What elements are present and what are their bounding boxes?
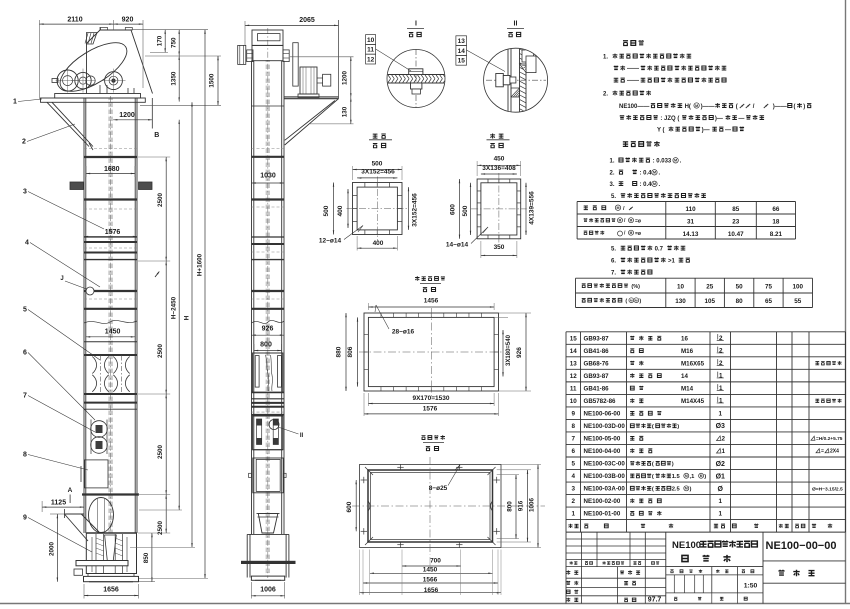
svg-text:M: M bbox=[617, 206, 620, 210]
svg-text:Ø2: Ø2 bbox=[716, 461, 725, 468]
svg-text:NE100: NE100 bbox=[672, 540, 701, 551]
svg-text:1: 1 bbox=[13, 99, 17, 106]
svg-text:H−2450: H−2450 bbox=[171, 296, 178, 319]
svg-text:10: 10 bbox=[677, 283, 685, 290]
svg-text:600: 600 bbox=[450, 204, 457, 215]
svg-text:5.: 5. bbox=[611, 194, 616, 200]
svg-text:1200: 1200 bbox=[119, 112, 135, 119]
svg-text:1: 1 bbox=[719, 385, 723, 392]
svg-text:800: 800 bbox=[507, 501, 514, 512]
svg-text:(: ( bbox=[625, 298, 627, 304]
svg-text:(: ( bbox=[652, 424, 654, 430]
svg-text:130: 130 bbox=[675, 298, 686, 305]
svg-text:)—: )— bbox=[702, 128, 710, 134]
svg-text:18: 18 bbox=[772, 218, 780, 225]
svg-text:2.5: 2.5 bbox=[672, 487, 681, 493]
svg-text:13: 13 bbox=[570, 360, 578, 367]
svg-text:GB68-76: GB68-76 bbox=[584, 360, 610, 367]
svg-text:II: II bbox=[514, 21, 518, 28]
svg-text:13: 13 bbox=[458, 38, 466, 45]
svg-text:1006: 1006 bbox=[529, 498, 536, 513]
svg-text:—: — bbox=[738, 116, 744, 122]
svg-text:,1: ,1 bbox=[690, 474, 696, 480]
svg-text:28−ø16: 28−ø16 bbox=[392, 329, 415, 336]
svg-text:9: 9 bbox=[571, 410, 575, 417]
svg-text:2500: 2500 bbox=[157, 193, 164, 208]
svg-text:11: 11 bbox=[367, 47, 374, 54]
svg-text:25: 25 bbox=[706, 283, 714, 290]
svg-text:H+1600: H+1600 bbox=[196, 253, 203, 276]
svg-text:=ø: =ø bbox=[635, 231, 642, 237]
svg-text:700: 700 bbox=[430, 558, 441, 565]
svg-text:2: 2 bbox=[719, 335, 723, 342]
svg-text:806: 806 bbox=[347, 346, 354, 357]
svg-text:)——: )—— bbox=[773, 104, 787, 110]
svg-text:8: 8 bbox=[23, 452, 27, 459]
svg-text:M16: M16 bbox=[681, 348, 694, 355]
svg-text:NE100——: NE100—— bbox=[619, 104, 649, 110]
svg-text:2: 2 bbox=[719, 360, 723, 367]
svg-text:85: 85 bbox=[732, 206, 740, 213]
svg-text:GB93-87: GB93-87 bbox=[584, 373, 610, 380]
svg-text:II: II bbox=[300, 433, 304, 439]
svg-text:3X180=540: 3X180=540 bbox=[506, 334, 512, 366]
svg-text:500: 500 bbox=[323, 205, 330, 216]
svg-text:Y (: Y ( bbox=[657, 128, 665, 134]
svg-text:1350: 1350 bbox=[170, 71, 177, 86]
svg-text:2500: 2500 bbox=[157, 521, 164, 536]
svg-text:NE100-01-00: NE100-01-00 bbox=[584, 511, 621, 518]
svg-text:2: 2 bbox=[719, 348, 723, 355]
svg-text:50: 50 bbox=[736, 283, 744, 290]
svg-text:6: 6 bbox=[23, 350, 27, 357]
svg-text:: 0.033: : 0.033 bbox=[653, 159, 672, 165]
svg-text:4: 4 bbox=[571, 473, 575, 480]
svg-text:(%): (%) bbox=[631, 284, 640, 290]
svg-text:1576: 1576 bbox=[423, 406, 438, 413]
svg-text:)—: )— bbox=[715, 116, 723, 122]
svg-text:1006: 1006 bbox=[260, 587, 276, 594]
svg-text:800: 800 bbox=[260, 342, 272, 349]
svg-text:14: 14 bbox=[681, 373, 688, 380]
svg-text:M: M bbox=[619, 218, 622, 222]
svg-text:500: 500 bbox=[462, 205, 469, 216]
svg-text:450: 450 bbox=[494, 156, 505, 163]
svg-text:)——: )—— bbox=[701, 104, 715, 110]
svg-text:12−ø14: 12−ø14 bbox=[319, 238, 342, 245]
svg-text:400: 400 bbox=[337, 205, 344, 216]
svg-text:1200: 1200 bbox=[342, 71, 349, 86]
svg-text:M: M bbox=[695, 104, 698, 108]
svg-text:GB41-86: GB41-86 bbox=[584, 348, 610, 355]
svg-text:5: 5 bbox=[571, 461, 575, 468]
svg-text:NE100-04-00: NE100-04-00 bbox=[584, 448, 621, 455]
svg-text:1450: 1450 bbox=[105, 329, 121, 336]
svg-text:/: / bbox=[624, 231, 626, 237]
svg-text:J: J bbox=[60, 276, 63, 282]
svg-text:920: 920 bbox=[122, 17, 134, 24]
svg-text:110: 110 bbox=[685, 206, 696, 213]
svg-text:Ø: Ø bbox=[718, 486, 724, 493]
svg-text:0.7: 0.7 bbox=[655, 247, 664, 253]
svg-text:NE100-03C-00: NE100-03C-00 bbox=[584, 461, 626, 468]
svg-text:=ø: =ø bbox=[635, 218, 642, 224]
svg-text:31: 31 bbox=[687, 218, 695, 225]
svg-text:(: ( bbox=[652, 474, 654, 480]
svg-text:916: 916 bbox=[518, 500, 525, 511]
svg-text:3X152=456: 3X152=456 bbox=[361, 169, 395, 176]
svg-text:170: 170 bbox=[157, 35, 164, 46]
svg-text:1.5: 1.5 bbox=[672, 474, 681, 480]
svg-text:400: 400 bbox=[373, 240, 384, 247]
svg-text:130: 130 bbox=[342, 106, 349, 117]
svg-text:): ) bbox=[639, 298, 641, 304]
svg-text:2.: 2. bbox=[610, 171, 615, 177]
svg-text:=: = bbox=[821, 449, 824, 455]
svg-text:1576: 1576 bbox=[105, 229, 121, 236]
svg-text:NE100-06-00: NE100-06-00 bbox=[584, 410, 621, 417]
svg-text:8: 8 bbox=[571, 423, 575, 430]
svg-text:100: 100 bbox=[793, 283, 804, 290]
svg-text:: 0.4: : 0.4 bbox=[639, 171, 652, 177]
svg-text:2: 2 bbox=[22, 139, 26, 146]
svg-text:105: 105 bbox=[704, 298, 715, 305]
svg-text:926: 926 bbox=[516, 347, 523, 358]
svg-text:11: 11 bbox=[570, 385, 577, 392]
svg-text:1.: 1. bbox=[603, 55, 608, 61]
svg-text:1: 1 bbox=[718, 498, 722, 505]
svg-text:65: 65 bbox=[765, 298, 773, 305]
svg-text:): ) bbox=[803, 104, 805, 110]
svg-text:12: 12 bbox=[367, 57, 375, 64]
svg-text:6: 6 bbox=[571, 448, 575, 455]
svg-text:3.: 3. bbox=[610, 182, 615, 188]
svg-text:(: ( bbox=[793, 104, 795, 110]
svg-text:M: M bbox=[674, 159, 677, 163]
svg-text:500: 500 bbox=[372, 161, 383, 168]
svg-text:2110: 2110 bbox=[67, 17, 82, 24]
svg-text:M: M bbox=[630, 298, 633, 302]
svg-text:2: 2 bbox=[722, 437, 726, 443]
svg-text:7.: 7. bbox=[611, 271, 616, 277]
svg-text:1125: 1125 bbox=[51, 500, 66, 507]
svg-text:10: 10 bbox=[367, 37, 375, 44]
svg-text:M: M bbox=[653, 171, 656, 175]
svg-text:1.: 1. bbox=[610, 159, 615, 165]
svg-text:NE100−00−00: NE100−00−00 bbox=[766, 540, 837, 552]
svg-text:1: 1 bbox=[719, 373, 723, 380]
svg-text:3: 3 bbox=[23, 189, 27, 196]
svg-text:M: M bbox=[685, 486, 688, 490]
svg-text:850: 850 bbox=[143, 552, 150, 563]
svg-text:5: 5 bbox=[23, 307, 27, 314]
svg-text:2: 2 bbox=[571, 498, 575, 505]
svg-text:1:50: 1:50 bbox=[744, 583, 758, 590]
svg-text:4: 4 bbox=[25, 240, 29, 247]
svg-text:M: M bbox=[635, 298, 638, 302]
svg-text:——: —— bbox=[627, 78, 639, 84]
svg-text:23: 23 bbox=[732, 218, 740, 225]
svg-text:GB5782-86: GB5782-86 bbox=[584, 398, 617, 405]
svg-text:6.: 6. bbox=[611, 259, 616, 265]
svg-text:I: I bbox=[415, 21, 417, 28]
svg-text:10.47: 10.47 bbox=[728, 231, 744, 238]
svg-text:=H/0.2+5.75: =H/0.2+5.75 bbox=[816, 436, 843, 442]
svg-text:B: B bbox=[154, 132, 159, 139]
svg-text:880: 880 bbox=[336, 346, 343, 357]
svg-text:GB41-86: GB41-86 bbox=[584, 385, 610, 392]
svg-text:15: 15 bbox=[458, 58, 466, 65]
svg-text:2065: 2065 bbox=[299, 17, 315, 24]
svg-text:1566: 1566 bbox=[423, 577, 438, 584]
svg-text:75: 75 bbox=[765, 283, 773, 290]
svg-text:600: 600 bbox=[346, 501, 353, 512]
svg-text:926: 926 bbox=[262, 326, 274, 333]
svg-text:H(: H( bbox=[685, 104, 691, 110]
svg-text:M: M bbox=[630, 231, 633, 235]
svg-text:M14X45: M14X45 bbox=[681, 398, 705, 405]
svg-text:8−ø25: 8−ø25 bbox=[429, 485, 448, 492]
svg-text:10: 10 bbox=[570, 398, 578, 405]
svg-text:.: . bbox=[658, 182, 660, 188]
svg-text:8.21: 8.21 bbox=[770, 231, 783, 238]
svg-text:——: —— bbox=[627, 66, 639, 72]
svg-text:—: — bbox=[725, 128, 731, 134]
svg-text:9: 9 bbox=[23, 515, 27, 522]
svg-text:55: 55 bbox=[794, 298, 802, 305]
svg-text:NE100-03A-00: NE100-03A-00 bbox=[584, 486, 626, 493]
svg-text:14: 14 bbox=[570, 348, 578, 355]
svg-text:GB93-87: GB93-87 bbox=[584, 335, 610, 342]
svg-text:.: . bbox=[658, 171, 660, 177]
svg-text:16: 16 bbox=[681, 335, 688, 342]
svg-text:/: / bbox=[623, 206, 625, 212]
svg-text:: 0.4: : 0.4 bbox=[639, 182, 652, 188]
svg-text:A: A bbox=[68, 487, 73, 494]
svg-text:750: 750 bbox=[170, 37, 177, 48]
svg-text:1030: 1030 bbox=[260, 173, 276, 180]
svg-text:7: 7 bbox=[23, 393, 27, 400]
svg-text:7: 7 bbox=[571, 436, 575, 443]
svg-text:(: ( bbox=[736, 104, 738, 110]
svg-text:.: . bbox=[680, 159, 682, 165]
svg-text:M: M bbox=[700, 474, 703, 478]
svg-text:>1: >1 bbox=[668, 259, 676, 265]
svg-text:1456: 1456 bbox=[424, 298, 439, 305]
svg-text:1: 1 bbox=[722, 449, 726, 455]
svg-text:350: 350 bbox=[494, 244, 505, 251]
svg-text:/: / bbox=[624, 218, 626, 224]
svg-text:15: 15 bbox=[570, 335, 578, 342]
svg-text:Ø=H−3.15/2.5: Ø=H−3.15/2.5 bbox=[812, 486, 843, 492]
svg-text:2500: 2500 bbox=[157, 445, 164, 460]
svg-text:1: 1 bbox=[571, 511, 575, 518]
svg-text:1656: 1656 bbox=[103, 587, 119, 594]
svg-text:NE100-03D-00: NE100-03D-00 bbox=[584, 423, 626, 430]
svg-text:12: 12 bbox=[570, 373, 578, 380]
svg-text:Ø3: Ø3 bbox=[716, 423, 725, 430]
svg-text:3X152=456: 3X152=456 bbox=[412, 193, 419, 227]
svg-text:3X136=408: 3X136=408 bbox=[482, 165, 516, 172]
svg-text:1500: 1500 bbox=[209, 73, 216, 88]
svg-text:M: M bbox=[630, 218, 633, 222]
svg-text:5.: 5. bbox=[611, 247, 616, 253]
svg-text:Ø1: Ø1 bbox=[716, 473, 725, 480]
svg-text:1: 1 bbox=[719, 398, 723, 405]
svg-text:(: ( bbox=[652, 487, 654, 493]
svg-text:2.: 2. bbox=[603, 92, 608, 98]
svg-text:2X4: 2X4 bbox=[830, 449, 839, 455]
svg-text:): ) bbox=[704, 474, 706, 480]
svg-text:M16X65: M16X65 bbox=[681, 360, 705, 367]
svg-text:1: 1 bbox=[718, 410, 722, 417]
svg-text:1: 1 bbox=[718, 511, 722, 518]
svg-text:NE100-03B-00: NE100-03B-00 bbox=[584, 473, 626, 480]
svg-text:(: ( bbox=[652, 461, 654, 467]
svg-text:3: 3 bbox=[571, 486, 575, 493]
svg-text:66: 66 bbox=[772, 206, 780, 213]
svg-text:NE100-02-00: NE100-02-00 bbox=[584, 498, 621, 505]
svg-text:): ) bbox=[677, 424, 679, 430]
svg-text:97.7: 97.7 bbox=[648, 597, 662, 604]
svg-text:80: 80 bbox=[736, 298, 744, 305]
svg-text:14−ø14: 14−ø14 bbox=[446, 242, 469, 249]
svg-text:): ) bbox=[690, 487, 692, 493]
svg-text:M14: M14 bbox=[681, 385, 694, 392]
svg-text:: JZQ (: : JZQ ( bbox=[660, 116, 679, 122]
svg-text:4X139=556: 4X139=556 bbox=[529, 191, 536, 225]
svg-text:2000: 2000 bbox=[48, 542, 55, 557]
svg-text:M: M bbox=[685, 474, 688, 478]
svg-text:NE100-05-00: NE100-05-00 bbox=[584, 436, 621, 443]
svg-text:2500: 2500 bbox=[157, 344, 164, 359]
svg-text:/: / bbox=[753, 104, 755, 110]
svg-text:M: M bbox=[653, 182, 656, 186]
svg-text:14.13: 14.13 bbox=[683, 231, 699, 238]
svg-text:): ) bbox=[672, 461, 674, 467]
svg-text:9X170=1530: 9X170=1530 bbox=[412, 395, 449, 402]
svg-text:H: H bbox=[183, 315, 190, 320]
svg-text:14: 14 bbox=[458, 48, 466, 55]
svg-text:1680: 1680 bbox=[104, 166, 120, 173]
